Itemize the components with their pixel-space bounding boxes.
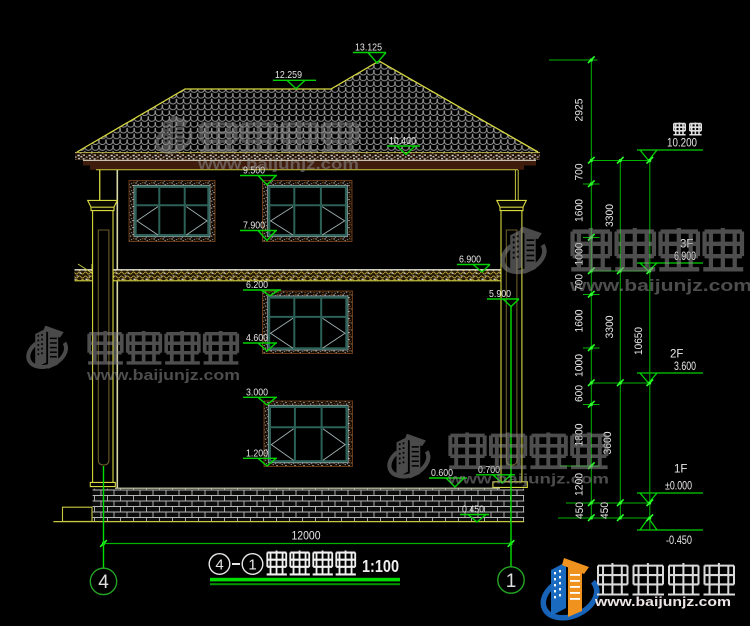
- svg-text:1: 1: [506, 571, 517, 592]
- svg-text:4.600: 4.600: [246, 332, 268, 344]
- svg-text:13.125: 13.125: [355, 42, 382, 54]
- svg-text:450: 450: [574, 502, 586, 519]
- svg-text:7.900: 7.900: [243, 220, 265, 232]
- svg-text:1F: 1F: [674, 464, 687, 476]
- svg-text:10.400: 10.400: [389, 135, 416, 147]
- svg-text:www.baijunjz.com: www.baijunjz.com: [197, 156, 359, 173]
- svg-text:10.200: 10.200: [667, 138, 697, 150]
- svg-text:1: 1: [248, 557, 256, 574]
- svg-text:±0.000: ±0.000: [665, 481, 692, 493]
- svg-text:3300: 3300: [604, 204, 616, 227]
- svg-text:3300: 3300: [604, 316, 616, 339]
- svg-text:2925: 2925: [574, 99, 586, 122]
- svg-text:2F: 2F: [670, 349, 683, 361]
- svg-text:0.450: 0.450: [462, 504, 484, 516]
- svg-text:www.baijunjz.com: www.baijunjz.com: [594, 595, 731, 609]
- svg-text:1:100: 1:100: [362, 556, 399, 576]
- svg-text:5.900: 5.900: [489, 288, 511, 300]
- svg-text:www.baijunjz.com: www.baijunjz.com: [569, 276, 750, 295]
- svg-text:3.000: 3.000: [246, 386, 268, 398]
- svg-text:1600: 1600: [574, 199, 586, 222]
- svg-text:1.200: 1.200: [246, 447, 268, 459]
- svg-text:www.baijunjz.com: www.baijunjz.com: [86, 368, 240, 384]
- svg-text:6.200: 6.200: [246, 279, 268, 291]
- svg-text:1600: 1600: [574, 310, 586, 333]
- svg-text:4: 4: [98, 572, 109, 593]
- svg-text:450: 450: [599, 502, 611, 519]
- svg-text:3.600: 3.600: [674, 361, 696, 373]
- svg-text:10650: 10650: [633, 327, 645, 355]
- svg-text:-0.450: -0.450: [666, 535, 692, 547]
- svg-text:6.900: 6.900: [459, 254, 481, 266]
- svg-text:12000: 12000: [292, 529, 321, 543]
- svg-text:4: 4: [215, 557, 223, 574]
- svg-text:600: 600: [574, 385, 586, 402]
- svg-text:www.baijunjz.com: www.baijunjz.com: [447, 472, 609, 487]
- svg-text:700: 700: [574, 164, 586, 181]
- svg-text:12.259: 12.259: [275, 69, 302, 81]
- svg-text:1000: 1000: [574, 354, 586, 377]
